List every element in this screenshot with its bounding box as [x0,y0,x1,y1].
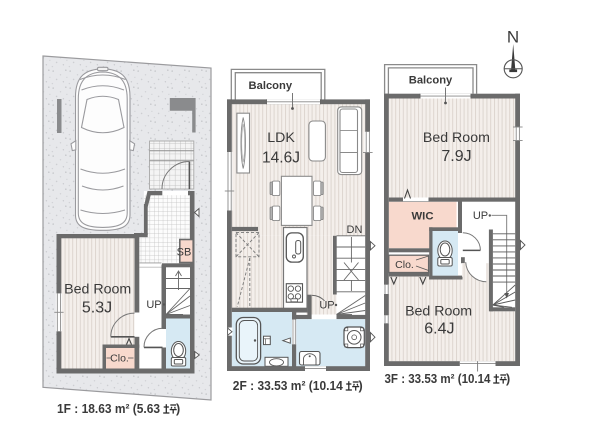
svg-text:SB: SB [177,246,192,258]
svg-text:UP: UP [319,300,334,312]
svg-text:2F : 33.53 m² (10.14: 2F : 33.53 m² (10.14 [233,379,343,393]
svg-text:WIC: WIC [412,211,434,223]
svg-text:): ) [359,379,363,393]
svg-text:Bed Room: Bed Room [64,281,131,297]
svg-text:7.9J: 7.9J [441,148,471,165]
svg-text:UP: UP [473,210,488,222]
svg-text:14.6J: 14.6J [262,149,300,166]
svg-text:Balcony: Balcony [409,75,453,87]
svg-text:): ) [506,372,510,386]
svg-text:Bed Room: Bed Room [423,130,490,146]
svg-text:Bed Room: Bed Room [405,304,472,320]
svg-text:Clo.: Clo. [395,259,414,271]
svg-text:Balcony: Balcony [249,80,293,92]
svg-text:5.3J: 5.3J [82,300,112,317]
svg-text:3F : 33.53 m² (10.14: 3F : 33.53 m² (10.14 [385,372,491,386]
svg-text:): ) [176,402,180,416]
svg-text:LDK: LDK [267,130,295,146]
svg-text:1F : 18.63 m² (5.63: 1F : 18.63 m² (5.63 [57,402,160,416]
svg-text:Clo.: Clo. [110,353,129,365]
svg-text:UP: UP [146,299,161,311]
svg-text:DN: DN [347,224,363,236]
svg-text:6.4J: 6.4J [424,321,454,338]
svg-text:N: N [507,28,519,47]
